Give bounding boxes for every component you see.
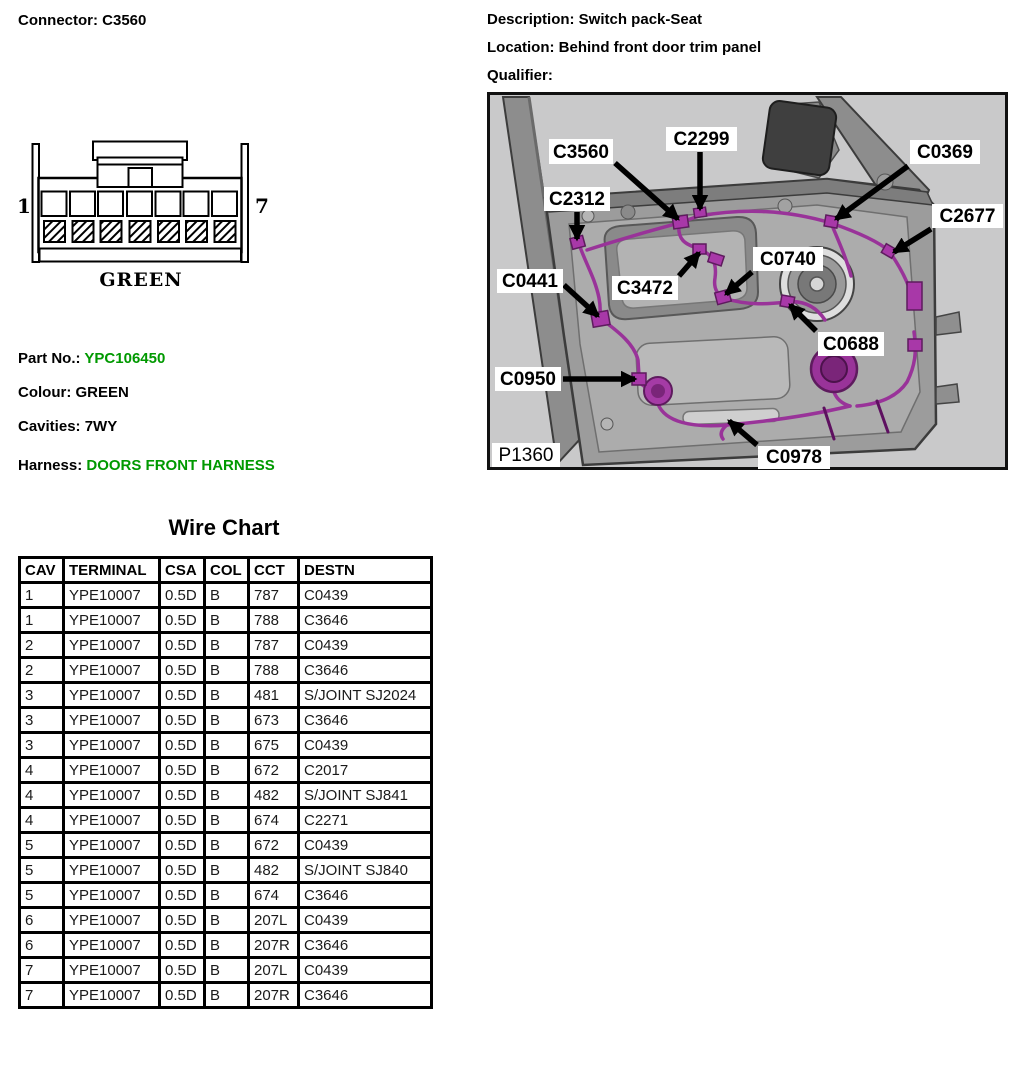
cell: 7 [20,983,64,1008]
cell: 207L [249,908,299,933]
cell: 482 [249,783,299,808]
wire-chart-table: CAVTERMINALCSACOLCCTDESTN 1YPE100070.5DB… [18,556,433,1009]
column-header-CCT: CCT [249,558,299,583]
cell: B [205,833,249,858]
colour-line: Colour: GREEN [18,384,129,401]
cell: 0.5D [160,683,205,708]
cell: 0.5D [160,583,205,608]
cell: 4 [20,808,64,833]
connector-hatched-row [44,221,236,242]
cell: 0.5D [160,758,205,783]
cell: 0.5D [160,908,205,933]
cell: 1 [20,583,64,608]
table-row: 7YPE100070.5DB207RC3646 [20,983,432,1008]
cell: 0.5D [160,608,205,633]
callout-label: C0950 [500,369,556,390]
table-row: 2YPE100070.5DB788C3646 [20,658,432,683]
cell: C0439 [299,733,432,758]
cell: 5 [20,883,64,908]
connector-face-diagram: 1 7 GREEN [10,135,290,300]
cell: 672 [249,833,299,858]
callout-label: C3560 [553,142,609,163]
table-row: 4YPE100070.5DB482S/JOINT SJ841 [20,783,432,808]
harness-value: DOORS FRONT HARNESS [86,457,274,474]
cell: 0.5D [160,958,205,983]
cell: 6 [20,933,64,958]
cell: 788 [249,658,299,683]
callout-label: C3472 [617,278,673,299]
callout-label: C0369 [917,142,973,163]
cell: 0.5D [160,858,205,883]
qualifier-line: Qualifier: [487,67,553,84]
cell: YPE10007 [64,883,160,908]
cell: YPE10007 [64,708,160,733]
cell: C2017 [299,758,432,783]
column-header-TERMINAL: TERMINAL [64,558,160,583]
cell: 2 [20,633,64,658]
connector-color-label: GREEN [99,269,182,291]
cell: C3646 [299,608,432,633]
callout-label: P1360 [499,445,554,466]
cell: C0439 [299,583,432,608]
connector-cavity-row [42,192,238,217]
cavities-line: Cavities: 7WY [18,418,117,435]
column-header-CSA: CSA [160,558,205,583]
cell: 6 [20,908,64,933]
wire-chart-header-row: CAVTERMINALCSACOLCCTDESTN [20,558,432,583]
cell: C0439 [299,633,432,658]
harness-label: Harness: [18,457,82,474]
figure-id-label: P1360 [492,443,560,467]
cell: 207R [249,933,299,958]
table-row: 3YPE100070.5DB673C3646 [20,708,432,733]
cell: YPE10007 [64,858,160,883]
cell: 672 [249,758,299,783]
cell: B [205,608,249,633]
cell: 674 [249,808,299,833]
table-row: 1YPE100070.5DB787C0439 [20,583,432,608]
connector-bottom-strip [40,249,242,262]
cell: C0439 [299,833,432,858]
cell: 0.5D [160,783,205,808]
table-row: 4YPE100070.5DB674C2271 [20,808,432,833]
cell: B [205,858,249,883]
cell: YPE10007 [64,758,160,783]
cell: 0.5D [160,808,205,833]
table-row: 2YPE100070.5DB787C0439 [20,633,432,658]
part-no-line: Part No.: YPC106450 [18,350,165,367]
cell: YPE10007 [64,983,160,1008]
cell: C0439 [299,908,432,933]
cell: B [205,683,249,708]
cell: YPE10007 [64,808,160,833]
cell: YPE10007 [64,658,160,683]
door-location-figure: C3560C2299C0369C2312C2677C0441C3472C0740… [487,92,1008,470]
cell: 3 [20,733,64,758]
cell: 5 [20,833,64,858]
cavities-label: Cavities: [18,418,81,435]
cell: YPE10007 [64,908,160,933]
cavities-value: 7WY [85,418,118,435]
pin-number-first: 1 [17,194,31,218]
column-header-COL: COL [205,558,249,583]
connector-heading: Connector: C3560 [18,12,146,29]
cell: 0.5D [160,883,205,908]
table-row: 6YPE100070.5DB207LC0439 [20,908,432,933]
column-header-CAV: CAV [20,558,64,583]
cell: B [205,783,249,808]
cell: 207R [249,983,299,1008]
cell: 7 [20,958,64,983]
cell: 5 [20,858,64,883]
part-no-label: Part No.: [18,350,81,367]
colour-label: Colour: [18,384,71,401]
cell: 673 [249,708,299,733]
cell: 4 [20,758,64,783]
cell: 787 [249,583,299,608]
cell: B [205,633,249,658]
cell: YPE10007 [64,933,160,958]
table-row: 3YPE100070.5DB675C0439 [20,733,432,758]
callout-label: C0740 [760,249,816,270]
description-line: Description: Switch pack-Seat [487,11,702,28]
cell: 207L [249,958,299,983]
cell: B [205,583,249,608]
cell: C2271 [299,808,432,833]
table-row: 3YPE100070.5DB481S/JOINT SJ2024 [20,683,432,708]
location-line: Location: Behind front door trim panel [487,39,761,56]
cell: YPE10007 [64,833,160,858]
callout-label: C2312 [549,189,605,210]
callout-label: C0688 [823,334,879,355]
cell: B [205,883,249,908]
cell: 0.5D [160,633,205,658]
cell: YPE10007 [64,683,160,708]
cell: YPE10007 [64,608,160,633]
table-row: 5YPE100070.5DB482S/JOINT SJ840 [20,858,432,883]
cell: 3 [20,683,64,708]
cell: YPE10007 [64,733,160,758]
cell: 482 [249,858,299,883]
table-row: 1YPE100070.5DB788C3646 [20,608,432,633]
table-row: 6YPE100070.5DB207RC3646 [20,933,432,958]
cell: 787 [249,633,299,658]
cell: C3646 [299,983,432,1008]
cell: 0.5D [160,708,205,733]
callout-label: C2299 [674,129,730,150]
connector-tab-lip [98,158,183,165]
connector-document-page: Connector: C3560 [0,0,1024,1072]
part-no-value: YPC106450 [84,350,165,367]
cell: B [205,933,249,958]
cell: B [205,658,249,683]
cell: B [205,708,249,733]
cell: S/JOINT SJ841 [299,783,432,808]
cell: B [205,808,249,833]
cell: B [205,733,249,758]
cell: 0.5D [160,733,205,758]
callout-label: C0441 [502,271,558,292]
table-row: 5YPE100070.5DB672C0439 [20,833,432,858]
cell: 0.5D [160,658,205,683]
cell: C3646 [299,708,432,733]
cell: YPE10007 [64,783,160,808]
cell: S/JOINT SJ2024 [299,683,432,708]
wire-chart-title: Wire Chart [18,515,430,541]
cell: 3 [20,708,64,733]
cell: 4 [20,783,64,808]
cell: S/JOINT SJ840 [299,858,432,883]
pin-number-last: 7 [255,194,269,218]
callout-label: C2677 [940,206,996,227]
connector-latch-notch [129,168,153,187]
colour-value: GREEN [76,384,129,401]
cell: C0439 [299,958,432,983]
cell: 1 [20,608,64,633]
cell: 0.5D [160,983,205,1008]
table-row: 7YPE100070.5DB207LC0439 [20,958,432,983]
cell: 788 [249,608,299,633]
cell: B [205,958,249,983]
cell: 0.5D [160,933,205,958]
table-row: 5YPE100070.5DB674C3646 [20,883,432,908]
cell: 481 [249,683,299,708]
cell: B [205,983,249,1008]
cell: B [205,758,249,783]
cell: 675 [249,733,299,758]
callout-label: C0978 [766,447,822,468]
column-header-DESTN: DESTN [299,558,432,583]
cell: YPE10007 [64,633,160,658]
cell: 2 [20,658,64,683]
cell: C3646 [299,658,432,683]
cell: YPE10007 [64,583,160,608]
cell: YPE10007 [64,958,160,983]
table-row: 4YPE100070.5DB672C2017 [20,758,432,783]
cell: C3646 [299,933,432,958]
cell: 0.5D [160,833,205,858]
cell: C3646 [299,883,432,908]
cell: B [205,908,249,933]
cell: 674 [249,883,299,908]
harness-line: Harness: DOORS FRONT HARNESS [18,457,275,474]
